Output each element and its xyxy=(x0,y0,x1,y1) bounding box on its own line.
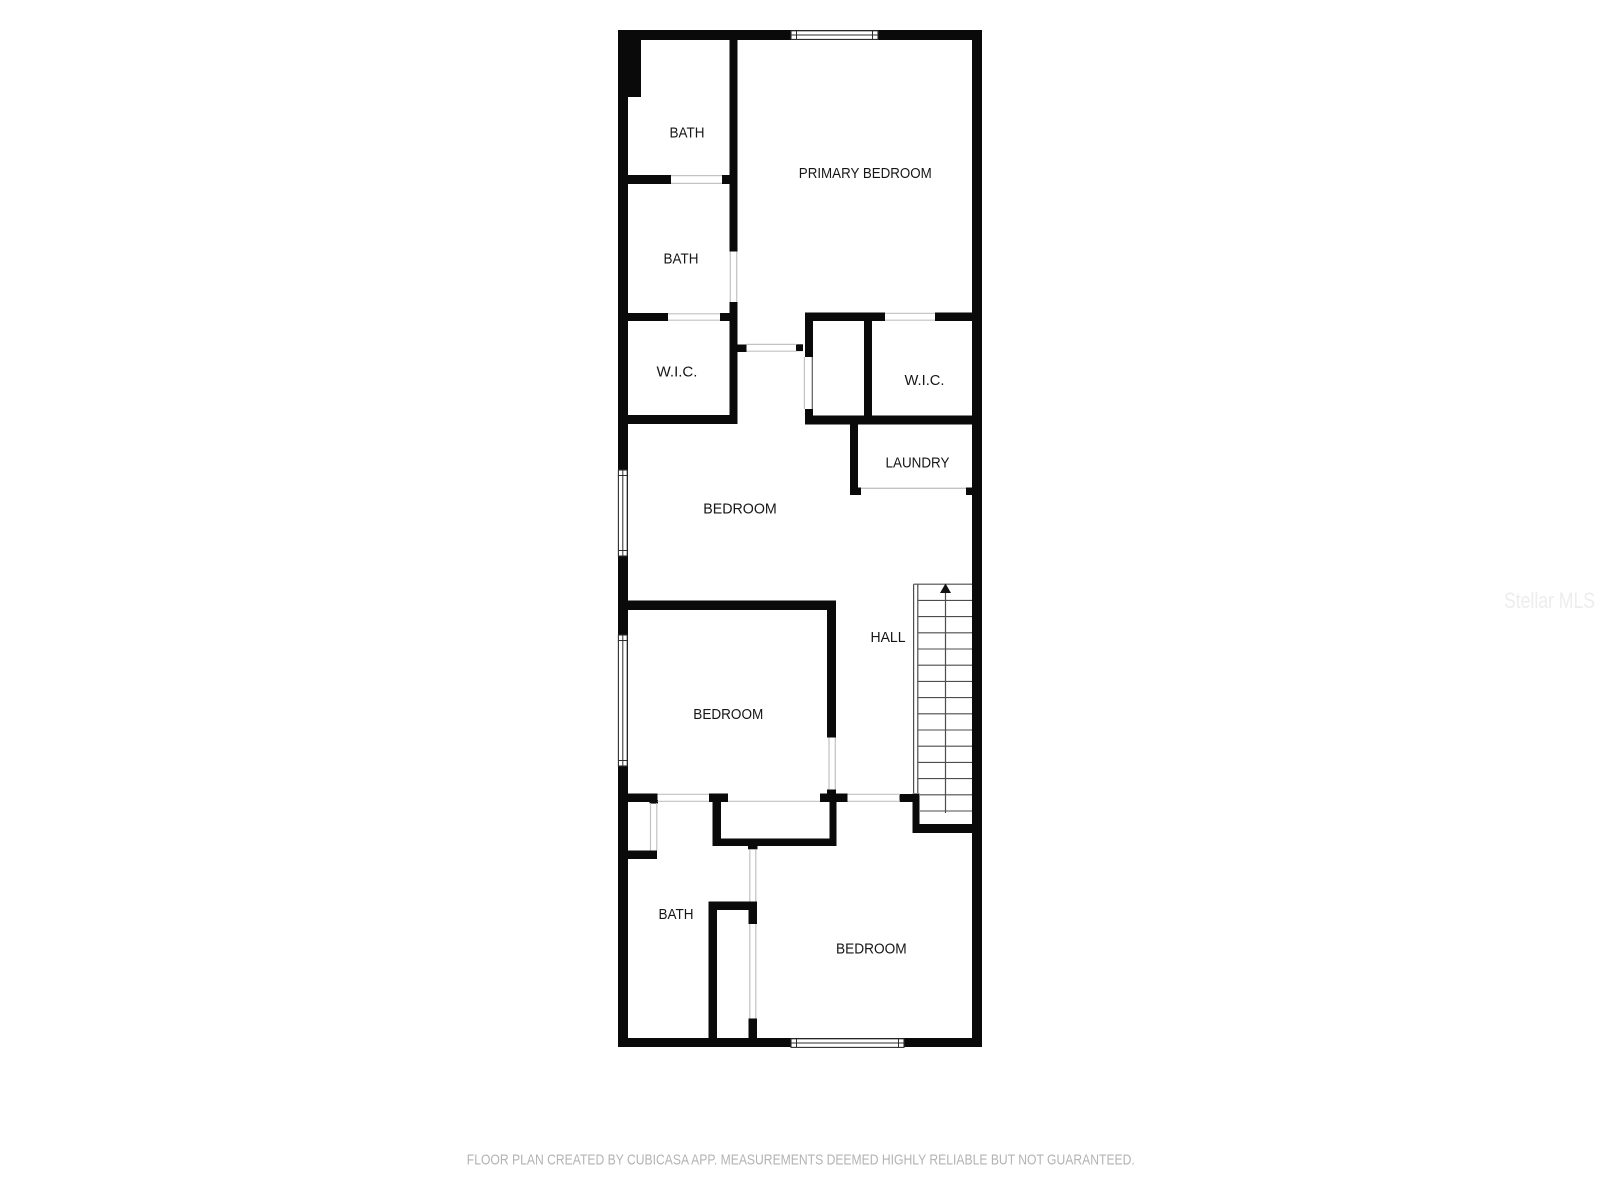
svg-text:LAUNDRY: LAUNDRY xyxy=(886,455,950,472)
svg-text:HALL: HALL xyxy=(871,629,906,646)
svg-text:BEDROOM: BEDROOM xyxy=(693,706,763,723)
svg-text:PRIMARY BEDROOM: PRIMARY BEDROOM xyxy=(799,165,932,182)
svg-text:W.I.C.: W.I.C. xyxy=(905,372,945,389)
svg-text:BATH: BATH xyxy=(659,906,694,923)
svg-text:Stellar MLS: Stellar MLS xyxy=(1504,588,1595,613)
svg-text:BATH: BATH xyxy=(670,124,705,141)
svg-text:FLOOR PLAN CREATED BY CUBICASA: FLOOR PLAN CREATED BY CUBICASA APP. MEAS… xyxy=(467,1152,1135,1169)
svg-text:BATH: BATH xyxy=(664,250,699,267)
svg-text:W.I.C.: W.I.C. xyxy=(657,364,698,381)
svg-text:BEDROOM: BEDROOM xyxy=(703,501,777,518)
svg-text:BEDROOM: BEDROOM xyxy=(836,941,907,958)
